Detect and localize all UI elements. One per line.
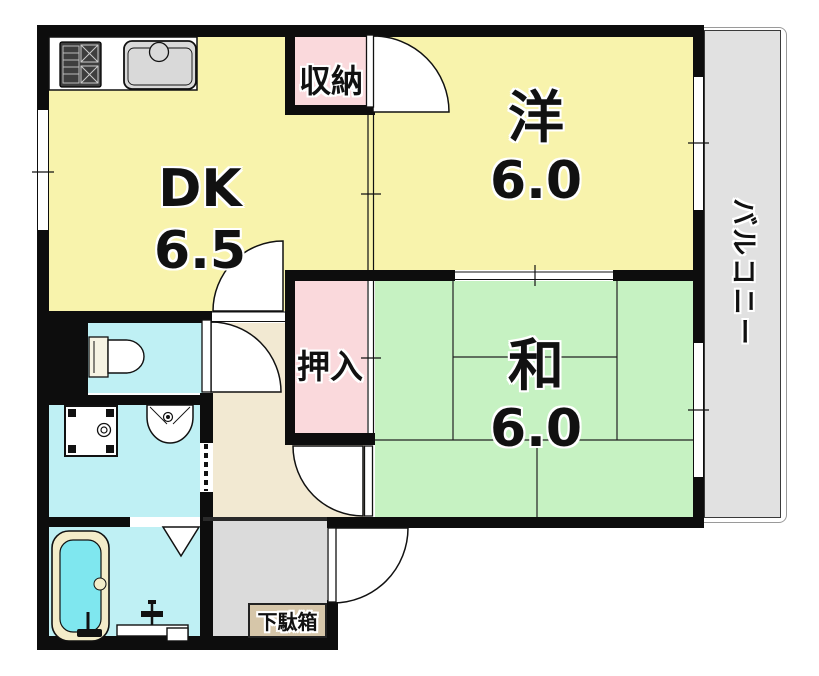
window-western-room bbox=[688, 77, 709, 210]
door-swing-storage bbox=[373, 36, 449, 112]
shoe-cabinet: 下駄箱 bbox=[248, 603, 327, 638]
folding-door-bathroom bbox=[130, 517, 200, 556]
storage-label: 収納 bbox=[291, 56, 371, 102]
western-room-size: 6.0 bbox=[456, 150, 616, 212]
door-leaf-entrance bbox=[328, 528, 336, 602]
oshiire-label: 押入 bbox=[289, 340, 371, 388]
washing-machine-pan-icon bbox=[65, 406, 117, 456]
dk-door-opening bbox=[212, 311, 285, 323]
western-room-name: 洋 bbox=[456, 88, 616, 150]
door-leaf-japanese bbox=[365, 446, 373, 516]
plan-linework bbox=[0, 0, 819, 676]
dk-size: 6.5 bbox=[135, 220, 265, 282]
balcony-label: バルコニー bbox=[727, 198, 766, 347]
partition-dk-western bbox=[361, 115, 381, 270]
door-swing-japanese bbox=[293, 446, 363, 516]
bath-faucet-counter bbox=[117, 600, 188, 641]
door-swing-entrance bbox=[333, 528, 408, 603]
western-room-label: 洋 6.0 bbox=[456, 88, 616, 212]
kitchen-sink-icon bbox=[124, 41, 196, 89]
window-dk-left bbox=[32, 110, 54, 230]
dk-label: DK 6.5 bbox=[135, 158, 265, 282]
japanese-room-size: 6.0 bbox=[456, 398, 616, 460]
window-japanese-room bbox=[688, 343, 709, 477]
toilet-icon bbox=[89, 337, 144, 377]
door-swing-toilet bbox=[211, 322, 281, 392]
gas-stove-icon bbox=[60, 42, 101, 87]
dk-name: DK bbox=[135, 158, 265, 220]
sliding-door-western-japanese bbox=[455, 265, 613, 286]
shoe-cabinet-label: 下駄箱 bbox=[258, 606, 318, 635]
wash-basin-icon bbox=[147, 405, 193, 443]
bathtub-icon bbox=[52, 531, 109, 641]
japanese-room-label: 和 6.0 bbox=[456, 336, 616, 460]
door-leaf-toilet bbox=[202, 320, 211, 392]
floor-plan: 下駄箱 DK 6.5 洋 6.0 和 6.0 収納 押入 バルコニー bbox=[0, 0, 819, 676]
japanese-room-name: 和 bbox=[456, 336, 616, 398]
accordion-door-washroom bbox=[200, 443, 213, 492]
